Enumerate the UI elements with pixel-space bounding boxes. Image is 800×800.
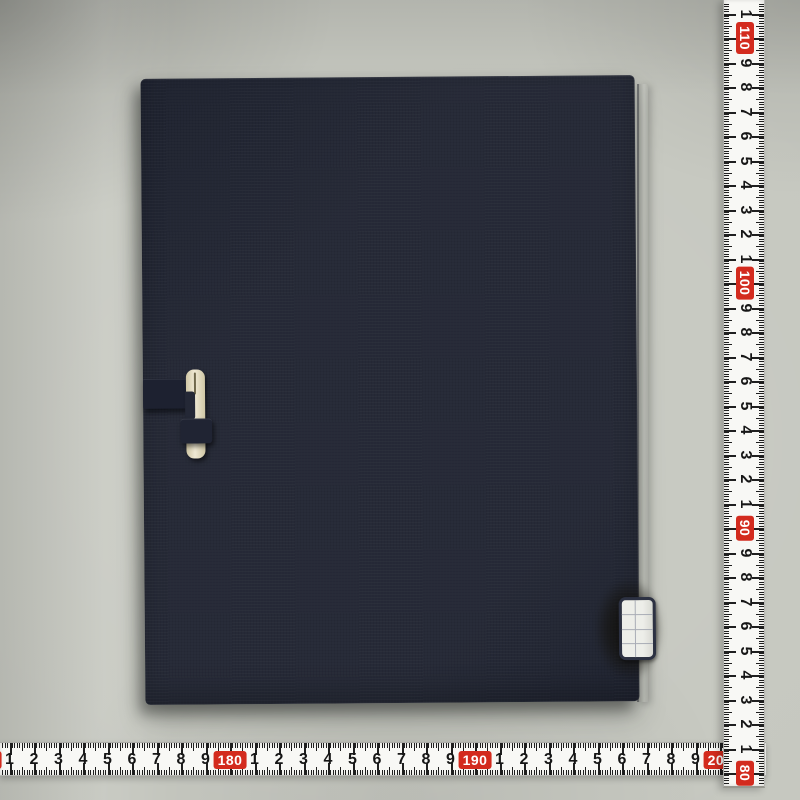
ruler-tick	[724, 530, 729, 531]
ruler-tick	[724, 753, 729, 754]
ruler-tick	[563, 743, 564, 748]
ruler-tick	[759, 484, 764, 485]
ruler-tick	[46, 767, 47, 775]
ruler-tick	[458, 770, 459, 775]
ruler-tick	[56, 770, 57, 775]
ruler-tick	[724, 428, 729, 429]
ruler-tick	[724, 616, 729, 617]
ruler-tick	[612, 770, 613, 775]
ruler-tick	[759, 285, 764, 286]
ruler-tick	[539, 743, 540, 748]
ruler-tick	[756, 124, 764, 125]
ruler-tick	[759, 205, 764, 206]
ruler-tick	[93, 770, 94, 775]
ruler-tick	[724, 116, 729, 117]
ruler-tick	[321, 743, 322, 748]
ruler-tick	[759, 609, 764, 610]
ruler-tick	[575, 743, 576, 748]
ruler-tick	[485, 770, 486, 775]
ruler-tick	[593, 743, 594, 748]
ruler-tick	[759, 305, 764, 306]
ruler-tick	[724, 749, 736, 751]
ruler-tick	[756, 638, 764, 639]
ruler-tick	[144, 767, 145, 775]
ruler-tick	[7, 770, 8, 775]
ruler-tick	[259, 770, 260, 775]
ruler-tick	[759, 290, 764, 291]
ruler-tick	[389, 767, 390, 775]
ruler-tick	[724, 486, 729, 487]
ruler-tick	[724, 195, 729, 196]
ruler-tick	[724, 38, 736, 40]
ruler-tick	[593, 770, 594, 775]
ruler-tick	[247, 770, 248, 775]
ruler-tick	[724, 4, 729, 5]
ruler-tick	[724, 408, 729, 409]
ruler-tick	[718, 770, 719, 775]
ruler-tick	[759, 641, 764, 642]
ruler-tick	[724, 224, 729, 225]
ruler-tick	[759, 423, 764, 424]
ruler-number: 1	[737, 744, 753, 753]
ruler-ten-mark: 170	[0, 751, 1, 769]
ruler-tick	[105, 743, 106, 748]
ruler-tick	[715, 770, 716, 775]
ruler-tick	[759, 690, 764, 691]
ruler-tick	[343, 770, 344, 775]
ruler-tick	[724, 31, 729, 32]
ruler-tick	[724, 197, 732, 198]
ruler-tick	[724, 175, 729, 176]
ruler-tick	[724, 477, 729, 478]
ruler-tick	[724, 317, 729, 318]
ruler-tick	[759, 533, 764, 534]
ruler-tick	[340, 767, 341, 775]
ruler-tick	[759, 668, 764, 669]
ruler-tick	[370, 770, 371, 775]
ruler-tick	[724, 553, 736, 555]
ruler-tick	[487, 743, 488, 751]
ruler-tick	[24, 770, 25, 775]
ruler-tick	[372, 770, 373, 775]
ruler-tick	[125, 770, 126, 775]
ruler-tick	[759, 67, 764, 68]
ruler-tick	[632, 770, 633, 775]
ruler-tick	[756, 369, 764, 370]
ruler-tick	[724, 97, 729, 98]
ruler-tick	[228, 743, 229, 748]
ruler-tick	[724, 682, 729, 683]
ruler-tick	[252, 743, 253, 748]
ruler-tick	[724, 501, 729, 502]
ruler-tick	[759, 506, 764, 507]
ruler-tick	[250, 743, 251, 748]
ruler-tick	[724, 435, 729, 436]
ruler-tick	[724, 315, 729, 316]
book-cover	[141, 75, 640, 705]
ruler-tick	[759, 241, 764, 242]
ruler-tick	[759, 450, 764, 451]
ruler-tick	[724, 712, 732, 713]
ruler-tick	[149, 743, 150, 748]
ruler-tick	[759, 658, 764, 659]
ruler-tick	[223, 770, 224, 775]
ruler-tick	[384, 743, 385, 748]
ruler-tick	[724, 327, 729, 328]
ruler-tick	[22, 767, 23, 775]
ruler-tick	[724, 628, 729, 629]
ruler-tick	[759, 501, 764, 502]
ruler-tick	[759, 660, 764, 661]
ruler-tick	[756, 614, 764, 615]
ruler-tick	[477, 743, 478, 748]
ruler-tick	[724, 151, 729, 152]
ruler-tick	[497, 743, 498, 748]
ruler-tick	[724, 626, 736, 628]
ruler-tick	[299, 743, 300, 748]
ruler-tick	[724, 570, 729, 571]
ruler-tick	[756, 75, 764, 76]
ruler-tick	[183, 770, 184, 775]
ruler-tick	[326, 743, 327, 748]
ruler-tick	[759, 570, 764, 571]
ruler-tick	[724, 528, 736, 530]
ruler-tick	[759, 624, 764, 625]
ruler-tick	[482, 743, 483, 748]
ruler-tick	[634, 743, 635, 751]
ruler-number: 8	[737, 83, 753, 92]
ruler-tick	[32, 743, 33, 748]
ruler-tick	[759, 315, 764, 316]
ruler-tick	[203, 743, 204, 748]
ruler-tick	[176, 743, 177, 748]
ruler-tick	[759, 214, 764, 215]
ruler-tick	[215, 743, 216, 748]
ruler-tick	[724, 82, 729, 83]
ruler-tick	[607, 743, 608, 748]
ruler-tick	[724, 285, 729, 286]
ruler-tick	[724, 190, 729, 191]
ruler-tick	[724, 624, 729, 625]
ruler-tick	[259, 743, 260, 748]
ruler-tick	[536, 743, 537, 751]
ruler-tick	[519, 770, 520, 775]
ruler-tick	[724, 36, 729, 37]
ruler-number: 2	[30, 752, 39, 768]
ruler-tick	[544, 770, 545, 775]
ruler-tick	[756, 418, 764, 419]
ruler-tick	[724, 758, 729, 759]
ruler-number: 8	[667, 752, 676, 768]
ruler-tick	[724, 383, 729, 384]
ruler-tick	[759, 526, 764, 527]
ruler-number: 1	[5, 752, 14, 768]
ruler-tick	[724, 418, 732, 419]
ruler-tick	[756, 663, 764, 664]
ruler-tick	[144, 743, 145, 751]
ruler-tick	[338, 743, 339, 748]
ruler-tick	[759, 244, 764, 245]
ruler-tick	[759, 9, 764, 10]
ruler-tick	[724, 276, 729, 277]
ruler-tick	[759, 428, 764, 429]
ruler-tick	[724, 244, 729, 245]
ruler-tick	[639, 770, 640, 775]
ruler-tick	[724, 271, 732, 272]
ruler-tick	[756, 246, 764, 247]
ruler-ten-mark: 100	[736, 267, 754, 300]
ruler-tick	[724, 136, 736, 138]
ruler-tick	[642, 743, 643, 748]
ruler-tick	[269, 770, 270, 775]
ruler-tick	[465, 770, 466, 775]
ruler-tick	[724, 241, 729, 242]
ruler-tick	[759, 104, 764, 105]
ruler-tick	[759, 317, 764, 318]
ruler-tick	[323, 743, 324, 748]
ruler-tick	[512, 743, 513, 751]
ruler-tick	[154, 770, 155, 775]
ruler-tick	[759, 53, 764, 54]
ruler-tick	[759, 300, 764, 301]
ruler-tick	[470, 770, 471, 775]
ruler-tick	[210, 743, 211, 748]
ruler-tick	[724, 246, 732, 247]
ruler-tick	[724, 545, 729, 546]
ruler-tick	[179, 770, 180, 775]
ruler-tick	[289, 770, 290, 775]
ruler-tick	[724, 393, 732, 394]
ruler-tick	[134, 743, 135, 748]
ruler-tick	[419, 770, 420, 775]
ruler-tick	[759, 263, 764, 264]
ruler-tick	[620, 770, 621, 775]
ruler-tick	[724, 369, 732, 370]
ruler-number: 9	[446, 752, 455, 768]
ruler-number: 7	[152, 752, 161, 768]
ruler-tick	[724, 192, 729, 193]
label-grid-line	[622, 628, 653, 629]
ruler-tick	[698, 770, 699, 775]
ruler-tick	[708, 743, 709, 751]
ruler-tick	[756, 148, 764, 149]
ruler-tick	[705, 743, 706, 748]
ruler-tick	[756, 540, 764, 541]
ruler-tick	[724, 406, 736, 408]
ruler-tick	[759, 4, 764, 5]
ruler-tick	[756, 295, 764, 296]
ruler-tick	[724, 734, 729, 735]
ruler-tick	[112, 743, 113, 748]
ruler-tick	[759, 322, 764, 323]
ruler-tick	[759, 731, 764, 732]
ruler-tick	[759, 82, 764, 83]
ruler-number: 7	[642, 752, 651, 768]
ruler-tick	[759, 707, 764, 708]
ruler-tick	[756, 271, 764, 272]
ruler-tick	[724, 673, 729, 674]
ruler-tick	[301, 743, 302, 748]
ruler-tick	[759, 376, 764, 377]
ruler-tick	[724, 455, 736, 457]
ruler-tick	[724, 163, 729, 164]
ruler-tick	[759, 440, 764, 441]
ruler-tick	[724, 72, 729, 73]
ruler-tick	[759, 143, 764, 144]
ruler-tick	[724, 65, 729, 66]
ruler-tick	[759, 312, 764, 313]
ruler-tick	[201, 770, 202, 775]
ruler-tick	[724, 592, 729, 593]
ruler-tick	[232, 743, 233, 748]
ruler-tick	[759, 587, 764, 588]
ruler-tick	[756, 442, 764, 443]
ruler-tick	[703, 770, 704, 775]
ruler-tick	[759, 636, 764, 637]
ruler-tick	[724, 210, 736, 212]
ruler-tick	[110, 770, 111, 775]
ruler-tick	[590, 770, 591, 775]
ruler-tick	[724, 499, 729, 500]
ruler-tick	[724, 633, 729, 634]
ruler-tick	[724, 239, 729, 240]
ruler-tick	[428, 770, 429, 775]
ruler-tick	[756, 197, 764, 198]
ruler-number: 1	[250, 752, 259, 768]
ruler-tick	[759, 597, 764, 598]
ruler-tick	[724, 227, 729, 228]
ruler-tick	[103, 770, 104, 775]
ruler-number: 9	[201, 752, 210, 768]
ruler-tick	[306, 770, 307, 775]
ruler-number: 6	[737, 622, 753, 631]
ruler-tick	[431, 743, 432, 748]
ruler-tick	[90, 770, 91, 775]
ruler-number: 3	[737, 695, 753, 704]
ruler-tick	[759, 604, 764, 605]
ruler-tick	[379, 743, 380, 748]
ruler-number: 6	[737, 377, 753, 386]
ruler-tick	[73, 770, 74, 775]
ruler-tick	[142, 770, 143, 775]
ruler-tick	[644, 770, 645, 775]
ruler-tick	[448, 770, 449, 775]
ruler-tick	[571, 743, 572, 748]
ruler-tick	[698, 743, 699, 748]
ruler-tick	[284, 770, 285, 775]
ruler-tick	[313, 770, 314, 775]
ruler-tick	[365, 767, 366, 775]
ruler-tick	[264, 770, 265, 775]
ruler-tick	[218, 743, 219, 751]
ruler-tick	[724, 778, 729, 779]
ruler-number: 4	[737, 426, 753, 435]
ruler-tick	[724, 141, 729, 142]
ruler-tick	[453, 770, 454, 775]
ruler-tick	[724, 134, 729, 135]
ruler-tick	[759, 175, 764, 176]
ruler-tick	[365, 743, 366, 751]
ruler-tick	[756, 26, 764, 27]
ruler-tick	[759, 325, 764, 326]
ruler-tick	[724, 58, 729, 59]
ruler-tick	[759, 543, 764, 544]
ruler-tick	[759, 229, 764, 230]
ruler-tick	[85, 743, 86, 748]
ruler-tick	[526, 743, 527, 748]
ruler-tick	[759, 200, 764, 201]
ruler-tick	[759, 562, 764, 563]
ruler-tick	[724, 621, 729, 622]
ruler-tick	[759, 646, 764, 647]
ruler-tick	[724, 464, 729, 465]
ruler-tick	[724, 452, 729, 453]
ruler-tick	[517, 770, 518, 775]
ruler-tick	[759, 361, 764, 362]
ruler-tick	[724, 516, 732, 517]
ruler-tick	[759, 354, 764, 355]
ruler-tick	[759, 170, 764, 171]
ruler-tick	[724, 180, 729, 181]
ruler-tick	[759, 165, 764, 166]
ruler-tick	[137, 743, 138, 748]
ruler-tick	[61, 770, 62, 775]
ruler-tick	[416, 743, 417, 748]
ruler-tick	[759, 523, 764, 524]
ruler-tick	[724, 736, 732, 737]
ruler-tick	[759, 398, 764, 399]
ruler-tick	[724, 305, 729, 306]
ruler-tick	[724, 112, 736, 114]
ruler-tick	[578, 770, 579, 775]
ruler-tick	[724, 330, 729, 331]
ruler-tick	[509, 743, 510, 748]
ruler-tick	[724, 763, 729, 764]
ruler-tick	[644, 743, 645, 748]
ruler-tick	[497, 770, 498, 775]
ruler-tick	[191, 743, 192, 748]
ruler-tick	[414, 767, 415, 775]
ruler-tick	[724, 540, 732, 541]
ruler-tick	[724, 518, 729, 519]
ruler-tick	[759, 521, 764, 522]
ruler-tick	[724, 582, 729, 583]
ruler-tick	[724, 183, 729, 184]
ruler-tick	[284, 743, 285, 748]
ruler-tick	[551, 770, 552, 775]
ruler-tick	[308, 743, 309, 748]
ruler-tick	[492, 743, 493, 748]
ruler-tick	[333, 743, 334, 748]
ruler-tick	[759, 366, 764, 367]
ruler-tick	[724, 207, 729, 208]
ruler-tick	[759, 330, 764, 331]
ruler-tick	[659, 743, 660, 751]
ruler-tick	[139, 770, 140, 775]
ruler-tick	[490, 770, 491, 775]
ruler-tick	[759, 780, 764, 781]
ruler-tick	[269, 743, 270, 748]
ruler-tick	[237, 743, 238, 748]
ruler-tick	[724, 322, 729, 323]
ruler-tick	[688, 770, 689, 775]
ruler-tick	[357, 743, 358, 748]
ruler-tick	[242, 743, 243, 751]
ruler-tick	[7, 743, 8, 748]
ruler-tick	[724, 212, 729, 213]
ruler-number: 4	[737, 671, 753, 680]
ruler-tick	[759, 619, 764, 620]
